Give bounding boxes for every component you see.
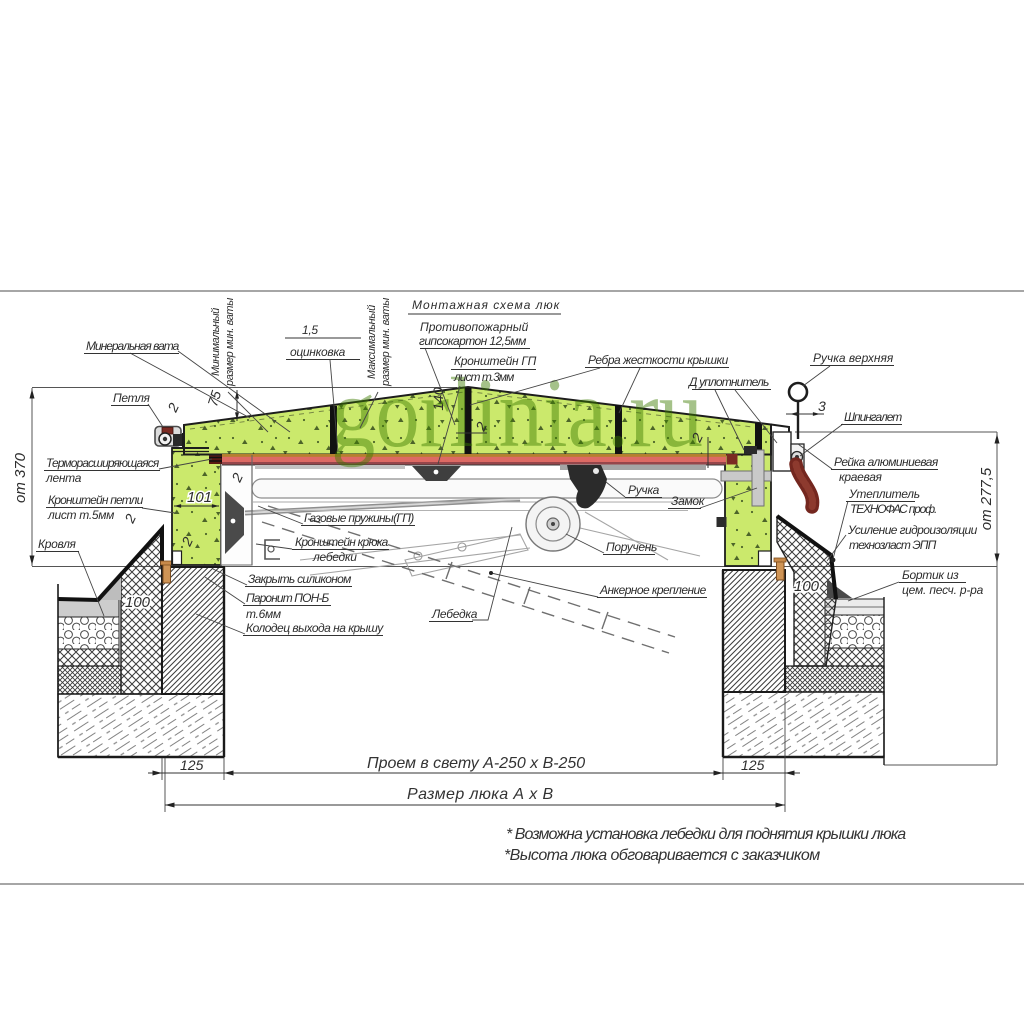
svg-text:от 370: от 370: [12, 452, 29, 503]
svg-text:лента: лента: [45, 471, 82, 485]
svg-text:Рейка алюминиевая: Рейка алюминиевая: [834, 455, 939, 469]
svg-text:125: 125: [741, 757, 765, 773]
svg-text:140: 140: [430, 387, 446, 411]
svg-text:Размер люка А х В: Размер люка А х В: [407, 786, 554, 803]
svg-text:100: 100: [794, 578, 820, 595]
svg-text:Ребра жесткости крышки: Ребра жесткости крышки: [588, 353, 729, 367]
svg-text:101: 101: [187, 489, 212, 506]
svg-text:Противопожарный: Противопожарный: [420, 320, 529, 334]
svg-text:125: 125: [180, 757, 204, 773]
svg-text:Максимальный: Максимальный: [366, 305, 378, 379]
svg-text:Колодец выхода на крышу: Колодец выхода на крышу: [246, 621, 384, 635]
svg-text:технозласт ЭПП: технозласт ЭПП: [849, 538, 937, 552]
svg-text:*Высота люка обговаривается с: *Высота люка обговаривается с заказчиком: [504, 847, 820, 864]
svg-text:Монтажная схема люк: Монтажная схема люк: [412, 298, 561, 312]
svg-text:лист т.5мм: лист т.5мм: [47, 508, 114, 522]
svg-text:Кронштейн петли: Кронштейн петли: [48, 493, 144, 507]
svg-text:Закрыть силиконом: Закрыть силиконом: [248, 572, 351, 586]
svg-text:Петля: Петля: [113, 391, 151, 405]
svg-text:Ручка: Ручка: [628, 483, 660, 497]
svg-text:Проем в свету А-250 х В-250: Проем в свету А-250 х В-250: [367, 755, 585, 772]
svg-text:Паронит ПОН-Б: Паронит ПОН-Б: [246, 591, 329, 605]
svg-text:гипсокартон 12,5мм: гипсокартон 12,5мм: [419, 334, 526, 348]
svg-text:1,5: 1,5: [302, 323, 318, 337]
svg-text:Кровля: Кровля: [38, 537, 77, 551]
svg-text:Газовые пружины(ГП): Газовые пружины(ГП): [304, 511, 414, 525]
svg-text:краевая: краевая: [839, 470, 883, 484]
svg-text:Замок: Замок: [671, 494, 706, 508]
svg-text:Лебедка: Лебедка: [431, 607, 478, 621]
svg-text:Шпингалет: Шпингалет: [844, 410, 902, 424]
svg-text:Анкерное крепление: Анкерное крепление: [599, 583, 707, 597]
svg-text:Минимальный: Минимальный: [210, 308, 222, 376]
svg-text:Кронштейн крюка: Кронштейн крюка: [295, 535, 389, 549]
svg-text:цем. песч. р-ра: цем. песч. р-ра: [902, 583, 984, 597]
svg-text:Терморасширяющаяся: Терморасширяющаяся: [46, 456, 160, 470]
svg-text:лист т.3мм: лист т.3мм: [453, 370, 514, 384]
svg-text:оцинковка: оцинковка: [290, 345, 346, 359]
svg-text:Утеплитель: Утеплитель: [848, 487, 920, 501]
svg-text:т.6мм: т.6мм: [246, 607, 281, 621]
svg-text:Усиление гидроизоляции: Усиление гидроизоляции: [847, 523, 978, 537]
svg-text:лебедки: лебедки: [312, 550, 357, 564]
svg-text:ТЕХНОФАС проф.: ТЕХНОФАС проф.: [850, 502, 937, 516]
svg-text:Поручень: Поручень: [606, 540, 657, 554]
svg-text:Д уплотнитель: Д уплотнитель: [687, 375, 769, 389]
svg-text:Ручка верхняя: Ручка верхняя: [813, 351, 894, 365]
svg-text:Кронштейн ГП: Кронштейн ГП: [454, 354, 537, 368]
svg-text:размер мин. ваты: размер мин. ваты: [380, 298, 392, 387]
svg-text:от 277,5: от 277,5: [978, 467, 995, 530]
svg-text:размер мин. ваты: размер мин. ваты: [224, 298, 236, 387]
svg-text:Минеральная вата: Минеральная вата: [86, 339, 180, 353]
svg-text:Бортик из: Бортик из: [902, 568, 959, 582]
svg-text:* Возможна установка лебедки д: * Возможна установка лебедки для подняти…: [506, 826, 906, 843]
svg-text:3: 3: [818, 398, 826, 414]
svg-text:100: 100: [125, 594, 151, 611]
